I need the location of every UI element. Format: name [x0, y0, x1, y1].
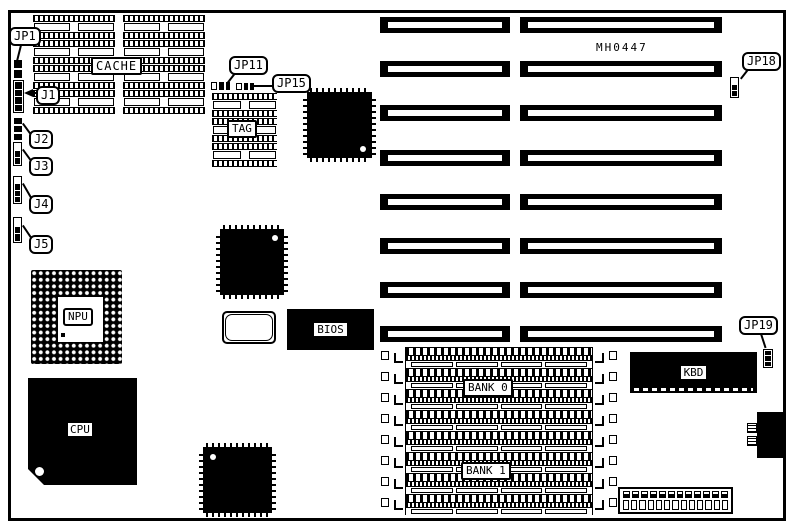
din-pin-connector [747, 436, 757, 446]
simm-socket-row [406, 410, 592, 431]
din-pin-connector [747, 423, 757, 433]
jumper-jp1 [14, 60, 22, 78]
jumper-j4 [13, 176, 22, 204]
simm-latch [380, 452, 405, 473]
jumper-jp18 [730, 77, 739, 98]
isa-slot [380, 326, 510, 342]
isa-slot [520, 282, 722, 298]
jumper-j5 [13, 217, 22, 243]
callout-jp15: JP15 [272, 74, 311, 93]
simm-latch [593, 410, 618, 431]
jumper-jp15 [236, 83, 254, 90]
callout-jp19: JP19 [739, 316, 778, 335]
simm-latch [380, 494, 405, 515]
pin1-dot-icon [210, 454, 216, 460]
isa-slot [520, 326, 722, 342]
dip-socket [212, 93, 277, 117]
power-pin-row-top [623, 491, 728, 499]
isa-slot [520, 194, 722, 210]
chipset-qfp-bottom [203, 447, 272, 513]
simm-rail-right [593, 347, 618, 515]
simm-latch [593, 452, 618, 473]
npu-socket: NPU [31, 270, 122, 364]
simm-latch [380, 347, 405, 368]
part-number: MH0447 [596, 41, 648, 54]
memory-bank-area [380, 347, 618, 515]
kbd-label: KBD [680, 365, 708, 380]
motherboard-diagram: CACHE TAG JP1 J1 J2 J3 J4 J5 JP11 JP15 [0, 0, 791, 527]
pin1-dot-icon [35, 467, 44, 476]
bios-chip: BIOS [287, 309, 374, 350]
callout-j3: J3 [29, 157, 53, 176]
simm-latch [593, 389, 618, 410]
cpu-chip: CPU [28, 378, 137, 485]
tag-label: TAG [227, 120, 257, 138]
jumper-j2 [14, 118, 22, 140]
jp15-pointer [254, 85, 273, 87]
callout-j2: J2 [29, 130, 53, 149]
isa-slot [520, 105, 722, 121]
bank1-label: BANK 1 [461, 462, 511, 480]
cpu-label: CPU [67, 422, 93, 437]
npu-label: NPU [63, 308, 93, 326]
callout-j4: J4 [29, 195, 53, 214]
jumper-jp19 [763, 349, 773, 368]
pin1-dot-icon [61, 333, 65, 337]
callout-jp1: JP1 [9, 27, 41, 46]
simm-socket-row [406, 347, 592, 368]
jumper-j3 [13, 142, 22, 166]
bank0-label: BANK 0 [463, 379, 513, 397]
simm-latch [593, 347, 618, 368]
isa-slot [520, 238, 722, 254]
isa-slot [380, 105, 510, 121]
simm-latch [593, 494, 618, 515]
chipset-qfp-top [307, 92, 372, 158]
simm-sockets [405, 347, 593, 515]
dip-socket [123, 90, 205, 114]
simm-latch [593, 473, 618, 494]
simm-rail-left [380, 347, 405, 515]
isa-slot [380, 194, 510, 210]
callout-j5: J5 [29, 235, 53, 254]
npu-socket-center: NPU [58, 297, 103, 342]
simm-latch [380, 431, 405, 452]
callout-jp11: JP11 [229, 56, 268, 75]
crystal-oscillator [222, 311, 276, 344]
simm-latch [380, 368, 405, 389]
simm-latch [380, 410, 405, 431]
isa-slot [380, 150, 510, 166]
isa-slot [380, 238, 510, 254]
simm-latch [593, 368, 618, 389]
isa-slot [520, 61, 722, 77]
isa-slot [380, 61, 510, 77]
simm-latch [380, 473, 405, 494]
cache-label: CACHE [91, 57, 142, 75]
isa-slot [380, 17, 510, 33]
keyboard-din-connector [757, 412, 786, 458]
chipset-qfp-middle [220, 229, 284, 295]
dip-socket [33, 15, 115, 39]
pin1-dot-icon [272, 235, 278, 241]
dip-socket [212, 143, 277, 167]
pin1-dot-icon [360, 146, 366, 152]
callout-jp18: JP18 [742, 52, 781, 71]
power-connector [618, 487, 733, 514]
simm-latch [593, 431, 618, 452]
bios-label: BIOS [313, 322, 348, 337]
isa-slot [520, 150, 722, 166]
simm-socket-row [406, 431, 592, 452]
keyboard-controller-chip: KBD [630, 352, 757, 393]
simm-latch [380, 389, 405, 410]
dip-socket [123, 15, 205, 39]
power-pin-row-bottom [623, 500, 728, 510]
callout-j1: J1 [36, 86, 60, 105]
jumper-j1-header [13, 80, 24, 113]
isa-slot [380, 282, 510, 298]
isa-slot [520, 17, 722, 33]
simm-socket-row [406, 494, 592, 515]
